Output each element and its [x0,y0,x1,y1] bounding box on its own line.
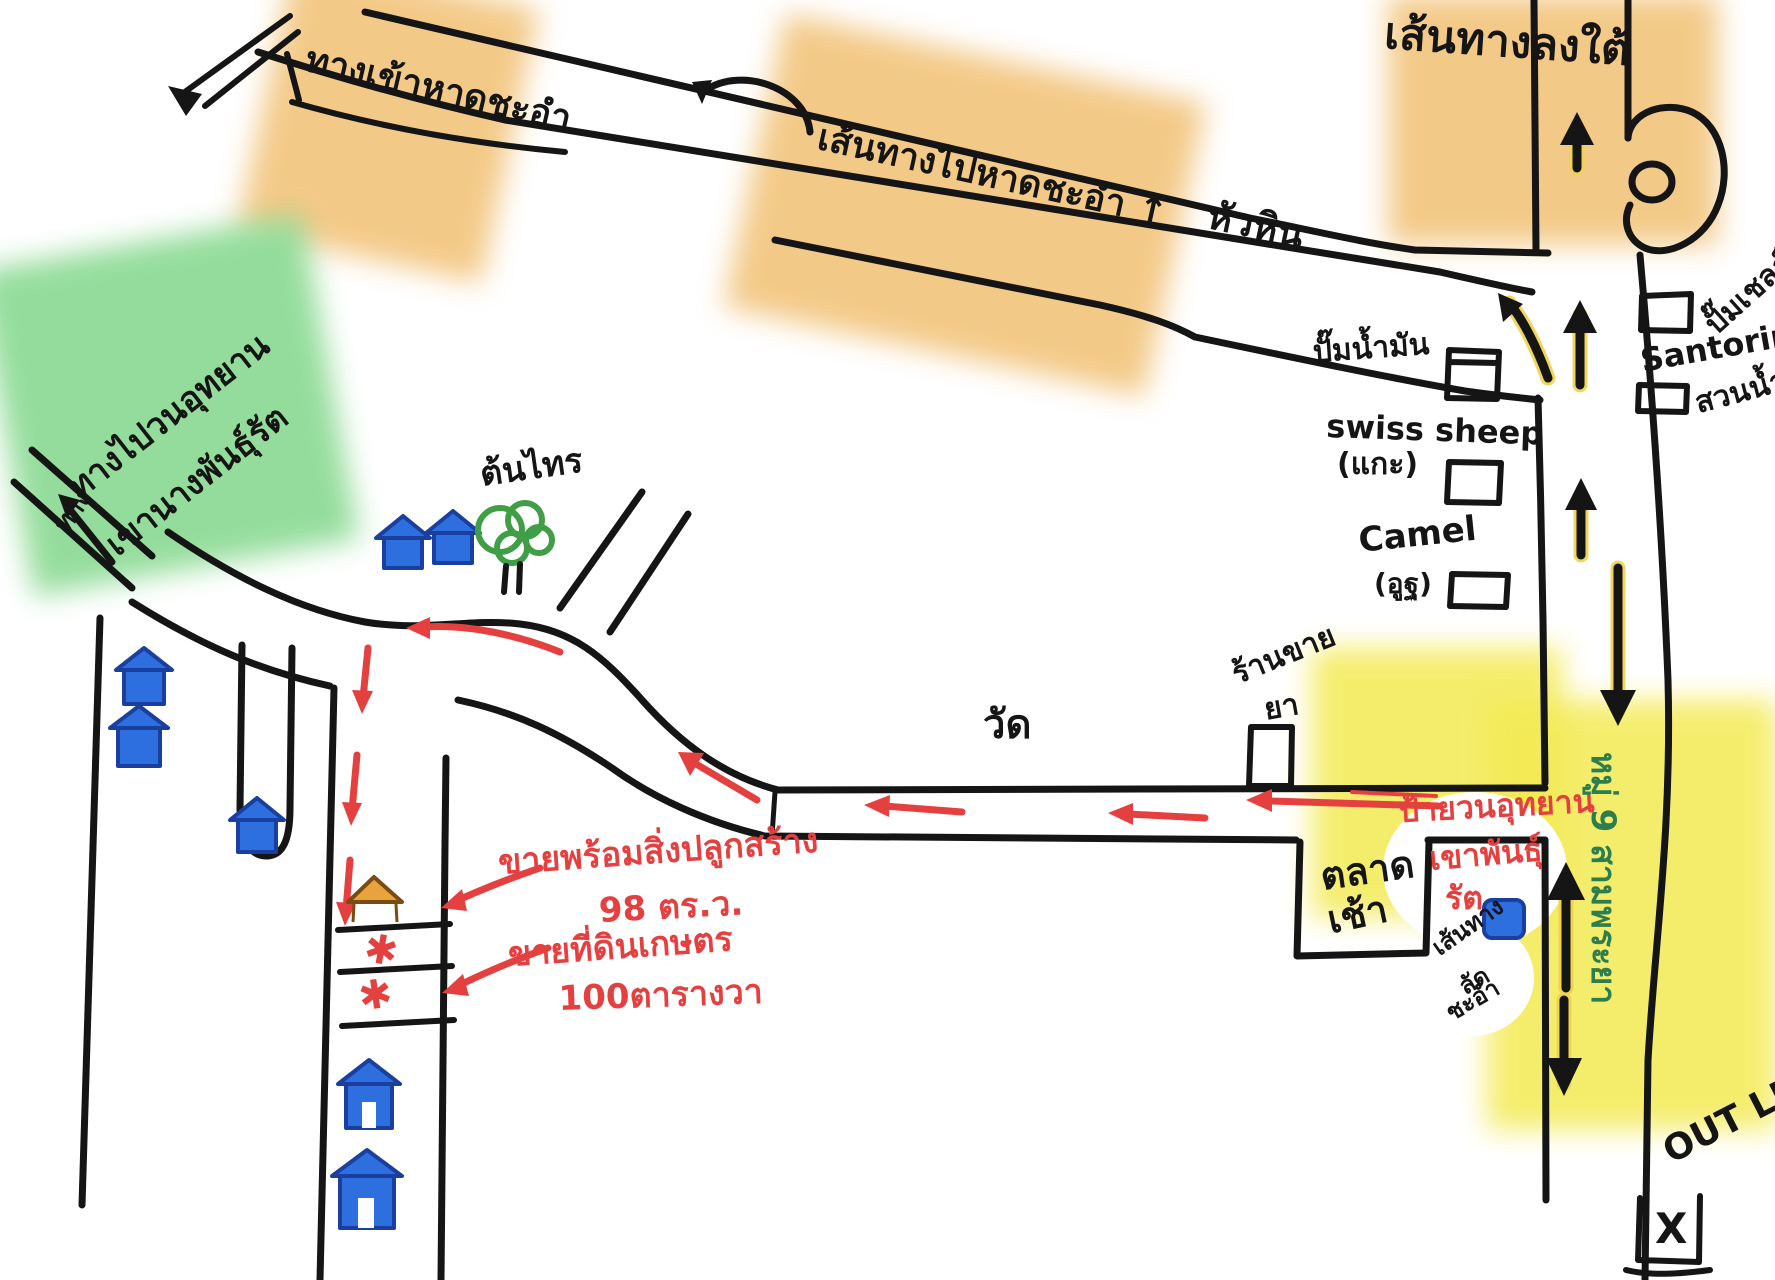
pharmacy-label-2: ยา [1262,690,1301,726]
red-down-1 [363,648,368,698]
house-icon [116,648,172,704]
camel-box [1450,574,1508,607]
house-icon [338,1060,400,1128]
sale-star-1: ✱ [361,928,401,973]
red-down-2 [352,755,357,810]
house-icon [110,706,168,766]
curved-up-arrow [1509,303,1548,378]
red-arrow-2 [884,806,962,812]
outlet-x-mark: X [1655,1208,1687,1250]
sale-house-icon [348,877,402,922]
red-arrowheads [336,617,1272,996]
house-icon [426,511,480,563]
pharmacy-box [1249,727,1292,786]
hand-drawn-direction-map: ทางเข้าหาดชะอำ เส้นทางไปหาดชะอำ ↑ หัวหิน… [0,0,1775,1280]
park-sign-label-2: เขาพันธุ์ [1428,833,1544,875]
house-icon [376,516,430,568]
red-arrow-3 [1128,814,1205,818]
camel-thai-label: (อูฐ) [1374,570,1432,598]
side-street-stubs [560,492,688,632]
red-route-arrows [346,626,1438,986]
park-sign-label-1: ป้ายวนอุทยาน [1398,785,1595,827]
swiss-sheep-label: swiss sheep [1326,410,1544,450]
sheep-thai-label: (แกะ) [1337,450,1418,480]
sale-land-label-2: 100ตารางวา [558,975,763,1016]
left-road-edge [82,618,100,1205]
tree-icon [478,503,552,592]
top-left-arrowhead [168,86,202,116]
market-label-2: เช้า [1324,889,1391,939]
sale-star-2: ✱ [356,973,395,1017]
house-icon [332,1150,402,1228]
village-road-label: หมู่ 9 สามพระยา [1586,752,1620,1004]
temple-label: วัด [983,705,1031,745]
gas-station-label: ปั๊มน้ำมัน [1312,330,1430,368]
map-drawing [0,0,1775,1280]
sheep-box [1447,462,1501,503]
santorini-box [1638,385,1687,412]
